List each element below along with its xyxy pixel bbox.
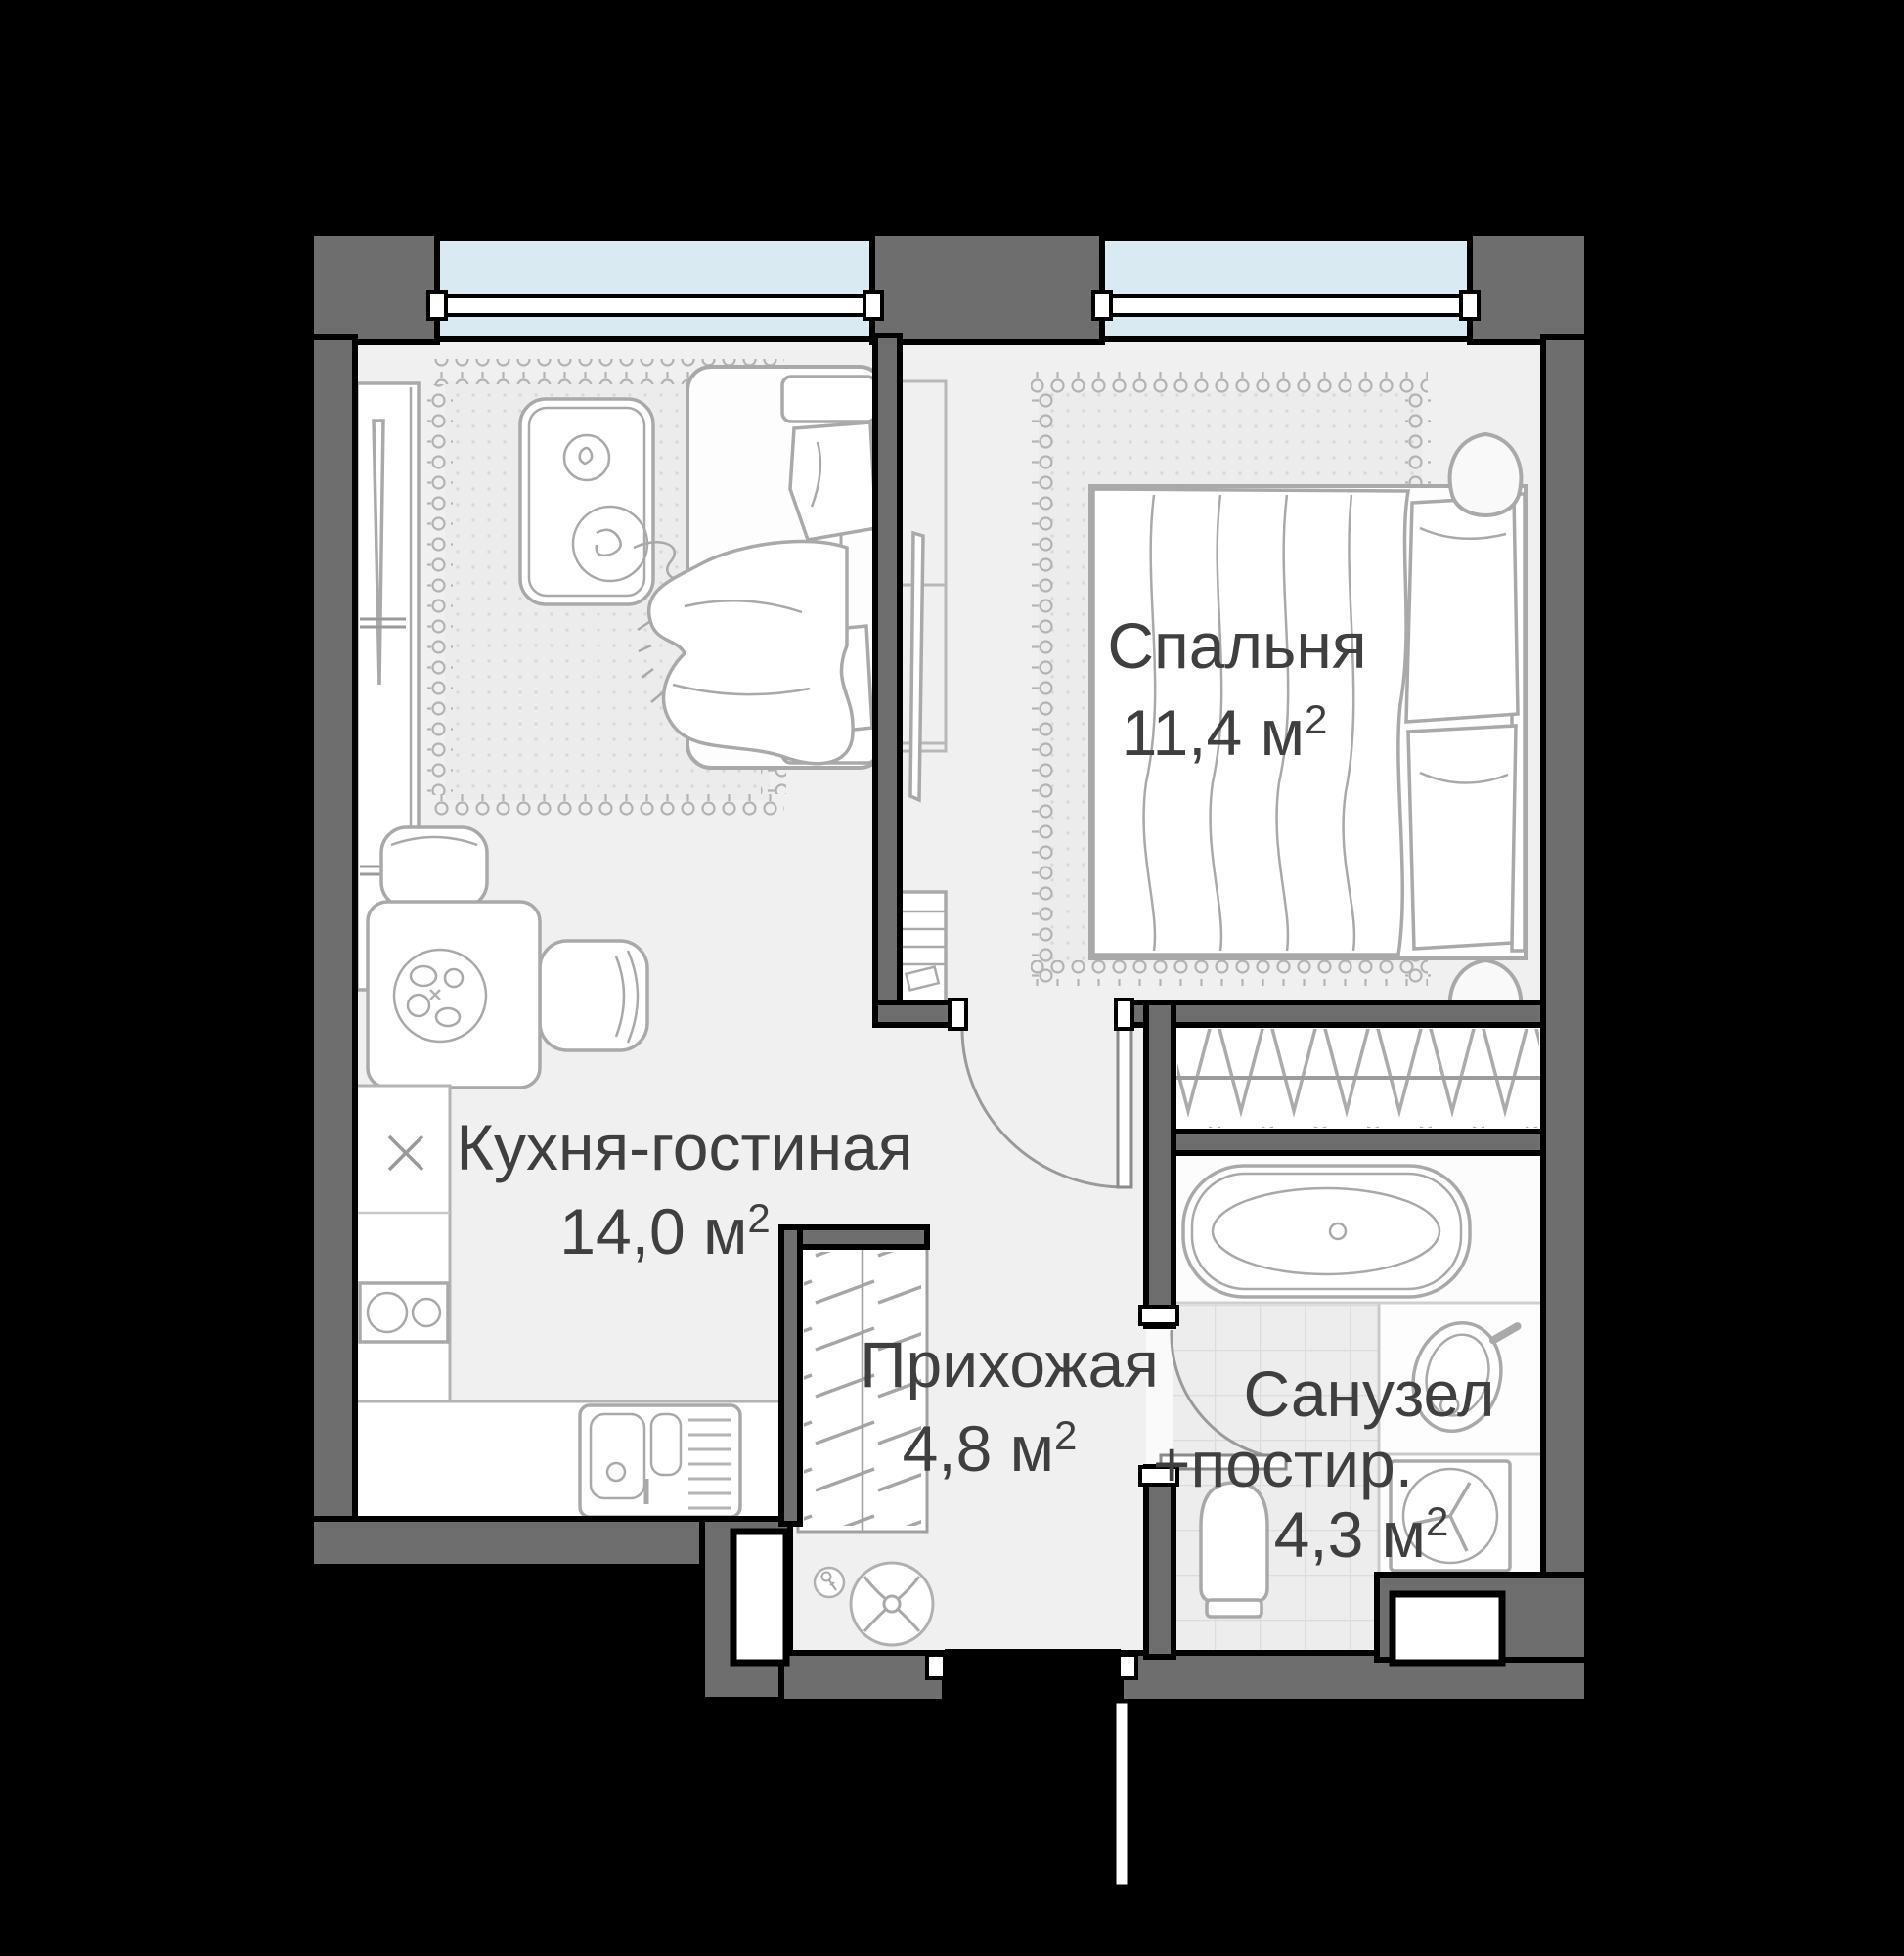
kitchen-sink: [580, 1405, 740, 1517]
room-area-bathroom: 4,3 м2: [1274, 1498, 1449, 1571]
room-label-bathroom: Санузел: [1243, 1357, 1494, 1430]
door-leaf: [1115, 1702, 1129, 1886]
wall-bathroom-left: [1146, 1002, 1173, 1326]
wall-pier: [872, 233, 1102, 342]
wall-right: [1543, 337, 1587, 1702]
bedroom-closet: [1173, 1025, 1543, 1132]
chair: [381, 827, 487, 908]
room-label-bathroom-2: +постир.: [1153, 1428, 1413, 1500]
tv-screen: [910, 533, 923, 800]
room-label-living: Кухня-гостиная: [457, 1111, 913, 1183]
window-frame: [437, 296, 873, 315]
room-area-bedroom: 11,4 м2: [1122, 696, 1328, 769]
room-area-living: 14,0 м2: [559, 1195, 771, 1267]
bookshelf: [900, 892, 946, 1002]
bathtub: [1183, 1166, 1470, 1297]
window-2: [1102, 238, 1470, 339]
pillow: [1408, 726, 1516, 949]
room-area-hallway: 4,8 м2: [903, 1412, 1078, 1485]
sofa-cushion: [790, 422, 876, 540]
wall-partition: [875, 335, 900, 1025]
wall-wardrobe-top: [781, 1227, 927, 1247]
room-label-bedroom: Спальня: [1107, 609, 1366, 682]
wall-left: [311, 337, 355, 1568]
shaft-niche: [1393, 1594, 1502, 1663]
floor-plan-canvas: Спальня 11,4 м2 Кухня-гостиная 14,0 м2 П…: [0, 0, 1904, 1956]
door-leaf: [1118, 1029, 1131, 1187]
fan-icon: [851, 1563, 933, 1645]
wall-bottom-left: [781, 1653, 945, 1702]
wall-bedroom-bottom: [1119, 1002, 1543, 1025]
toilet: [1201, 1483, 1267, 1617]
wall-pier: [1470, 233, 1587, 342]
wall-pier: [311, 233, 437, 342]
entrance-opening: [945, 1649, 1121, 1708]
shaft-niche: [733, 1532, 786, 1663]
window-1: [437, 238, 873, 339]
room-label-hallway: Прихожая: [860, 1328, 1159, 1400]
wall-wardrobe-left: [781, 1227, 800, 1524]
key-icon: [815, 1568, 844, 1597]
floor-plan: Спальня 11,4 м2 Кухня-гостиная 14,0 м2 П…: [0, 0, 1904, 1956]
window-frame: [1102, 296, 1470, 315]
wall-closet-divider: [1173, 1132, 1543, 1153]
cooktop: [360, 1283, 448, 1342]
